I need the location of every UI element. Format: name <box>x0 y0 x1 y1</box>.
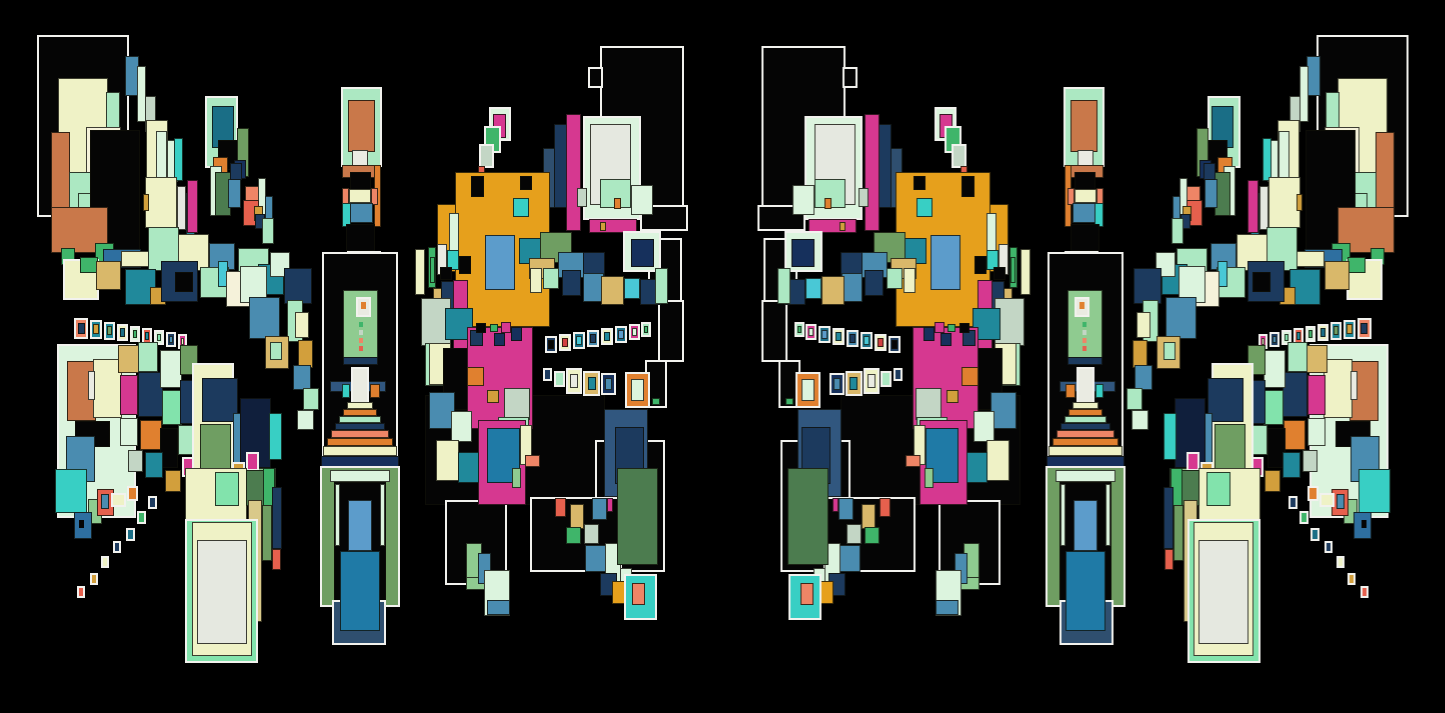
art-rect <box>335 484 340 546</box>
art-rect <box>864 527 879 544</box>
art-rect <box>1171 218 1183 244</box>
art-rect <box>1198 540 1248 644</box>
art-rect <box>1307 486 1318 501</box>
art-rect <box>1305 345 1327 373</box>
art-rect <box>512 468 521 488</box>
art-rect <box>342 384 350 398</box>
art-rect <box>842 67 857 88</box>
art-rect <box>604 332 610 341</box>
art-rect <box>1263 350 1285 388</box>
art-rect <box>1082 330 1086 335</box>
art-rect <box>1336 556 1344 568</box>
art-rect <box>1204 179 1217 208</box>
art-rect <box>78 323 85 334</box>
art-rect <box>632 328 637 336</box>
art-rect <box>415 249 425 295</box>
art-rect <box>861 504 875 529</box>
art-rect <box>777 268 790 304</box>
art-rect <box>577 188 587 207</box>
art-rect <box>1082 322 1086 327</box>
art-rect <box>838 498 853 520</box>
art-rect <box>504 388 530 420</box>
art-rect <box>380 484 385 546</box>
art-tile-left <box>0 0 723 713</box>
art-rect <box>1074 189 1096 203</box>
art-rect <box>284 268 312 304</box>
art-rect <box>249 297 280 339</box>
art-rect <box>543 268 559 289</box>
art-rect <box>359 330 363 335</box>
art-rect <box>525 455 540 467</box>
art-rect <box>1065 384 1075 398</box>
art-rect <box>458 452 479 483</box>
art-rect <box>107 326 112 335</box>
art-rect <box>1133 268 1161 304</box>
art-rect <box>175 272 193 292</box>
art-rect <box>961 176 974 197</box>
art-rect <box>588 67 603 88</box>
art-rect <box>959 323 969 333</box>
art-rect <box>935 600 958 615</box>
art-rect <box>974 256 986 274</box>
art-rect <box>479 144 494 168</box>
art-rect <box>270 342 282 360</box>
art-rect <box>459 256 471 274</box>
art-rect <box>1173 505 1183 561</box>
art-rect <box>467 367 484 386</box>
art-rect <box>1346 324 1352 334</box>
art-rect <box>592 498 607 520</box>
art-rect <box>617 468 658 565</box>
art-rect <box>348 100 375 152</box>
art-rect <box>187 180 198 233</box>
art-rect <box>349 189 371 203</box>
art-rect <box>1056 430 1114 438</box>
art-rect <box>924 468 933 488</box>
art-rect <box>269 413 282 460</box>
art-rect <box>631 239 654 267</box>
art-rect <box>501 322 511 333</box>
art-rect <box>177 186 186 230</box>
art-rect <box>1203 163 1215 180</box>
art-rect <box>295 312 309 338</box>
art-rect <box>858 188 868 207</box>
art-rect <box>934 322 944 333</box>
art-rect <box>614 198 621 209</box>
art-rect <box>272 549 281 570</box>
art-rect <box>839 545 860 572</box>
art-rect <box>1268 177 1300 228</box>
art-rect <box>298 340 313 368</box>
art-rect <box>555 498 566 517</box>
art-rect <box>1048 446 1122 456</box>
art-rect <box>1302 450 1317 472</box>
art-rect <box>864 270 883 296</box>
art-rect <box>143 194 149 211</box>
art-rect <box>1072 402 1098 409</box>
art-rect <box>863 336 869 345</box>
art-rect <box>787 468 828 565</box>
art-rect <box>576 336 582 345</box>
art-rect <box>1333 326 1338 335</box>
art-rect <box>631 379 644 401</box>
art-rect <box>1324 261 1349 290</box>
art-rect <box>511 327 522 341</box>
art-rect <box>297 410 314 430</box>
art-rect <box>1136 312 1150 338</box>
art-rect <box>90 573 98 585</box>
art-rect <box>1020 249 1030 295</box>
art-rect <box>905 455 920 467</box>
art-rect <box>1132 340 1147 368</box>
art-rect <box>923 327 934 341</box>
art-rect <box>655 268 668 304</box>
art-rect <box>88 371 95 400</box>
art-rect <box>1247 180 1258 233</box>
art-rect <box>1055 470 1115 482</box>
art-rect <box>886 268 902 289</box>
art-rect <box>946 390 958 403</box>
art-rect <box>485 235 515 290</box>
art-rect <box>93 324 99 334</box>
art-rect <box>1065 551 1105 631</box>
art-rect <box>1299 511 1308 524</box>
art-rect <box>961 367 978 386</box>
art-rect <box>1060 423 1110 430</box>
art-rect <box>570 374 578 388</box>
art-rect <box>101 494 109 509</box>
art-rect <box>800 583 813 605</box>
art-rect <box>891 340 897 349</box>
art-rect <box>126 528 135 541</box>
art-rect <box>1264 470 1280 492</box>
art-rect <box>96 261 121 290</box>
art-rect <box>792 185 814 215</box>
art-rect <box>644 326 648 333</box>
art-rect <box>877 338 883 347</box>
art-rect <box>79 520 84 528</box>
art-rect <box>1073 500 1097 551</box>
art-rect <box>1288 496 1297 509</box>
art-rect <box>145 177 177 228</box>
art-rect <box>77 586 85 598</box>
art-rect <box>915 388 941 420</box>
art-rect <box>951 144 966 168</box>
art-rect <box>476 323 486 333</box>
art-rect <box>359 322 363 327</box>
art-rect <box>1282 372 1307 417</box>
art-rect <box>1070 100 1097 152</box>
art-tile-right <box>723 0 1445 713</box>
art-rect <box>833 378 840 390</box>
art-rect <box>584 524 599 544</box>
art-rect <box>1079 302 1084 309</box>
art-rect <box>487 600 510 615</box>
art-rect <box>631 185 653 215</box>
art-rect <box>120 418 138 446</box>
art-rect <box>570 504 584 529</box>
art-rect <box>430 257 435 283</box>
art-rect <box>562 270 581 296</box>
art-rect <box>1296 194 1302 211</box>
art-rect <box>1283 420 1305 450</box>
art-rect <box>893 368 902 381</box>
art-rect <box>370 384 380 398</box>
art-rect <box>835 332 841 341</box>
art-rect <box>1259 186 1268 230</box>
art-rect <box>1360 586 1368 598</box>
art-rect <box>849 334 855 343</box>
art-rect <box>127 486 138 501</box>
art-rect <box>346 224 375 251</box>
art-rect <box>120 375 138 415</box>
art-rect <box>791 239 814 267</box>
art-rect <box>293 365 311 390</box>
art-rect <box>947 324 955 332</box>
art-rect <box>520 176 532 190</box>
art-rect <box>566 527 581 544</box>
art-rect <box>913 176 925 190</box>
art-rect <box>513 198 529 217</box>
art-rect <box>1263 390 1283 425</box>
art-rect <box>343 409 377 416</box>
art-rect <box>801 379 814 401</box>
art-rect <box>880 371 891 387</box>
art-rect <box>494 333 505 346</box>
art-rect <box>1064 416 1106 423</box>
art-rect <box>1324 541 1332 553</box>
art-rect <box>350 203 373 223</box>
art-rect <box>1164 549 1173 570</box>
art-rect <box>554 371 565 387</box>
art-rect <box>1206 472 1230 506</box>
art-rect <box>118 345 140 373</box>
art-rect <box>916 198 932 217</box>
art-rect <box>1360 323 1367 334</box>
art-rect <box>1082 338 1086 343</box>
art-rect <box>1307 418 1325 446</box>
art-rect <box>930 235 960 290</box>
art-rect <box>303 388 319 410</box>
art-rect <box>359 346 363 351</box>
art-rect <box>359 338 363 343</box>
art-rect <box>879 498 890 517</box>
art-rect <box>1131 410 1148 430</box>
art-rect <box>632 583 645 605</box>
art-rect <box>327 438 393 446</box>
art-rect <box>986 440 1009 481</box>
art-rect <box>490 324 498 332</box>
art-rect <box>1134 365 1152 390</box>
art-rect <box>1262 138 1271 181</box>
art-rect <box>600 222 606 231</box>
art-rect <box>878 124 891 208</box>
art-rect <box>1336 494 1344 509</box>
art-rect <box>228 179 241 208</box>
art-rect <box>605 378 612 390</box>
art-rect <box>165 470 181 492</box>
art-rect <box>1307 375 1325 415</box>
art-rect <box>903 268 915 293</box>
art-rect <box>1287 342 1307 372</box>
art-rect <box>966 452 987 483</box>
art-rect <box>181 338 184 345</box>
art-rect <box>1010 257 1015 283</box>
art-rect <box>543 368 552 381</box>
art-rect <box>973 411 994 442</box>
art-rect <box>808 328 813 336</box>
art-rect <box>846 524 861 544</box>
art-rect <box>1308 330 1312 338</box>
art-rect <box>832 498 838 512</box>
art-rect <box>361 302 366 309</box>
art-rect <box>824 198 831 209</box>
art-rect <box>1282 452 1300 478</box>
art-rect <box>436 440 459 481</box>
artwork-canvas <box>0 0 1445 713</box>
art-rect <box>993 267 1005 280</box>
art-rect <box>585 545 606 572</box>
art-rect <box>148 496 157 509</box>
art-rect <box>1126 388 1142 410</box>
art-rect <box>1163 413 1176 460</box>
art-rect <box>471 176 484 197</box>
art-rect <box>347 402 373 409</box>
art-rect <box>1358 469 1390 513</box>
art-rect <box>548 340 554 349</box>
art-rect <box>120 328 125 337</box>
art-rect <box>588 377 596 390</box>
art-rect <box>652 398 660 405</box>
art-rect <box>761 300 787 362</box>
art-rect <box>1350 371 1357 400</box>
art-rect <box>797 326 801 333</box>
art-rect <box>1296 332 1300 340</box>
art-rect <box>340 551 380 631</box>
art-rect <box>162 390 182 425</box>
art-rect <box>805 278 821 299</box>
art-rect <box>1052 438 1118 446</box>
art-rect <box>262 218 274 244</box>
art-rect <box>1310 528 1319 541</box>
art-rect <box>1165 297 1196 339</box>
art-rect <box>331 430 389 438</box>
art-rect <box>624 278 640 299</box>
art-rect <box>451 411 472 442</box>
art-rect <box>145 452 163 478</box>
art-rect <box>157 334 161 341</box>
art-rect <box>113 541 121 553</box>
art-rect <box>1186 452 1199 471</box>
art-rect <box>215 472 239 506</box>
art-rect <box>246 452 259 471</box>
art-rect <box>137 511 146 524</box>
art-rect <box>145 332 149 340</box>
art-rect <box>562 338 568 347</box>
art-rect <box>330 470 390 482</box>
art-rect <box>55 469 87 513</box>
art-rect <box>618 330 624 339</box>
art-rect <box>1347 257 1365 273</box>
art-rect <box>111 493 126 507</box>
art-rect <box>156 131 167 180</box>
art-rect <box>272 487 282 549</box>
art-rect <box>440 267 452 280</box>
art-rect <box>140 420 162 450</box>
art-rect <box>348 500 372 551</box>
art-rect <box>607 498 613 512</box>
art-rect <box>1272 336 1276 343</box>
art-rect <box>849 377 857 390</box>
art-rect <box>133 330 137 338</box>
art-rect <box>940 333 951 346</box>
art-rect <box>1076 367 1094 404</box>
art-rect <box>1319 493 1334 507</box>
art-rect <box>197 540 247 644</box>
art-rect <box>1060 484 1065 546</box>
art-rect <box>449 213 459 255</box>
art-rect <box>1163 487 1173 549</box>
art-rect <box>160 350 182 388</box>
art-rect <box>1070 224 1099 251</box>
art-rect <box>867 374 875 388</box>
art-rect <box>323 446 397 456</box>
art-rect <box>1284 334 1288 341</box>
art-rect <box>343 357 378 365</box>
art-rect <box>785 398 793 405</box>
art-rect <box>169 336 173 343</box>
art-rect <box>1261 338 1264 345</box>
art-rect <box>1105 484 1110 546</box>
art-rect <box>1095 384 1103 398</box>
art-rect <box>335 423 385 430</box>
art-rect <box>590 334 596 343</box>
art-rect <box>658 300 684 362</box>
art-rect <box>351 367 369 404</box>
art-rect <box>864 114 879 231</box>
art-rect <box>487 390 499 403</box>
art-rect <box>128 450 143 472</box>
art-rect <box>986 213 996 255</box>
art-rect <box>101 556 109 568</box>
art-rect <box>601 276 624 305</box>
art-rect <box>530 268 542 293</box>
art-rect <box>230 163 242 180</box>
art-rect <box>138 342 158 372</box>
art-rect <box>1361 520 1366 528</box>
art-rect <box>262 505 272 561</box>
art-rect <box>1278 131 1289 180</box>
art-rect <box>339 416 381 423</box>
art-rect <box>839 222 845 231</box>
art-rect <box>821 276 844 305</box>
art-rect <box>1072 203 1095 223</box>
art-rect <box>1082 346 1086 351</box>
art-rect <box>1252 272 1270 292</box>
art-rect <box>1163 342 1175 360</box>
art-rect <box>174 138 183 181</box>
art-rect <box>1068 409 1102 416</box>
art-rect <box>1347 573 1355 585</box>
art-rect <box>1067 357 1102 365</box>
art-rect <box>821 330 827 339</box>
art-rect <box>1320 328 1325 337</box>
art-rect <box>566 114 581 231</box>
